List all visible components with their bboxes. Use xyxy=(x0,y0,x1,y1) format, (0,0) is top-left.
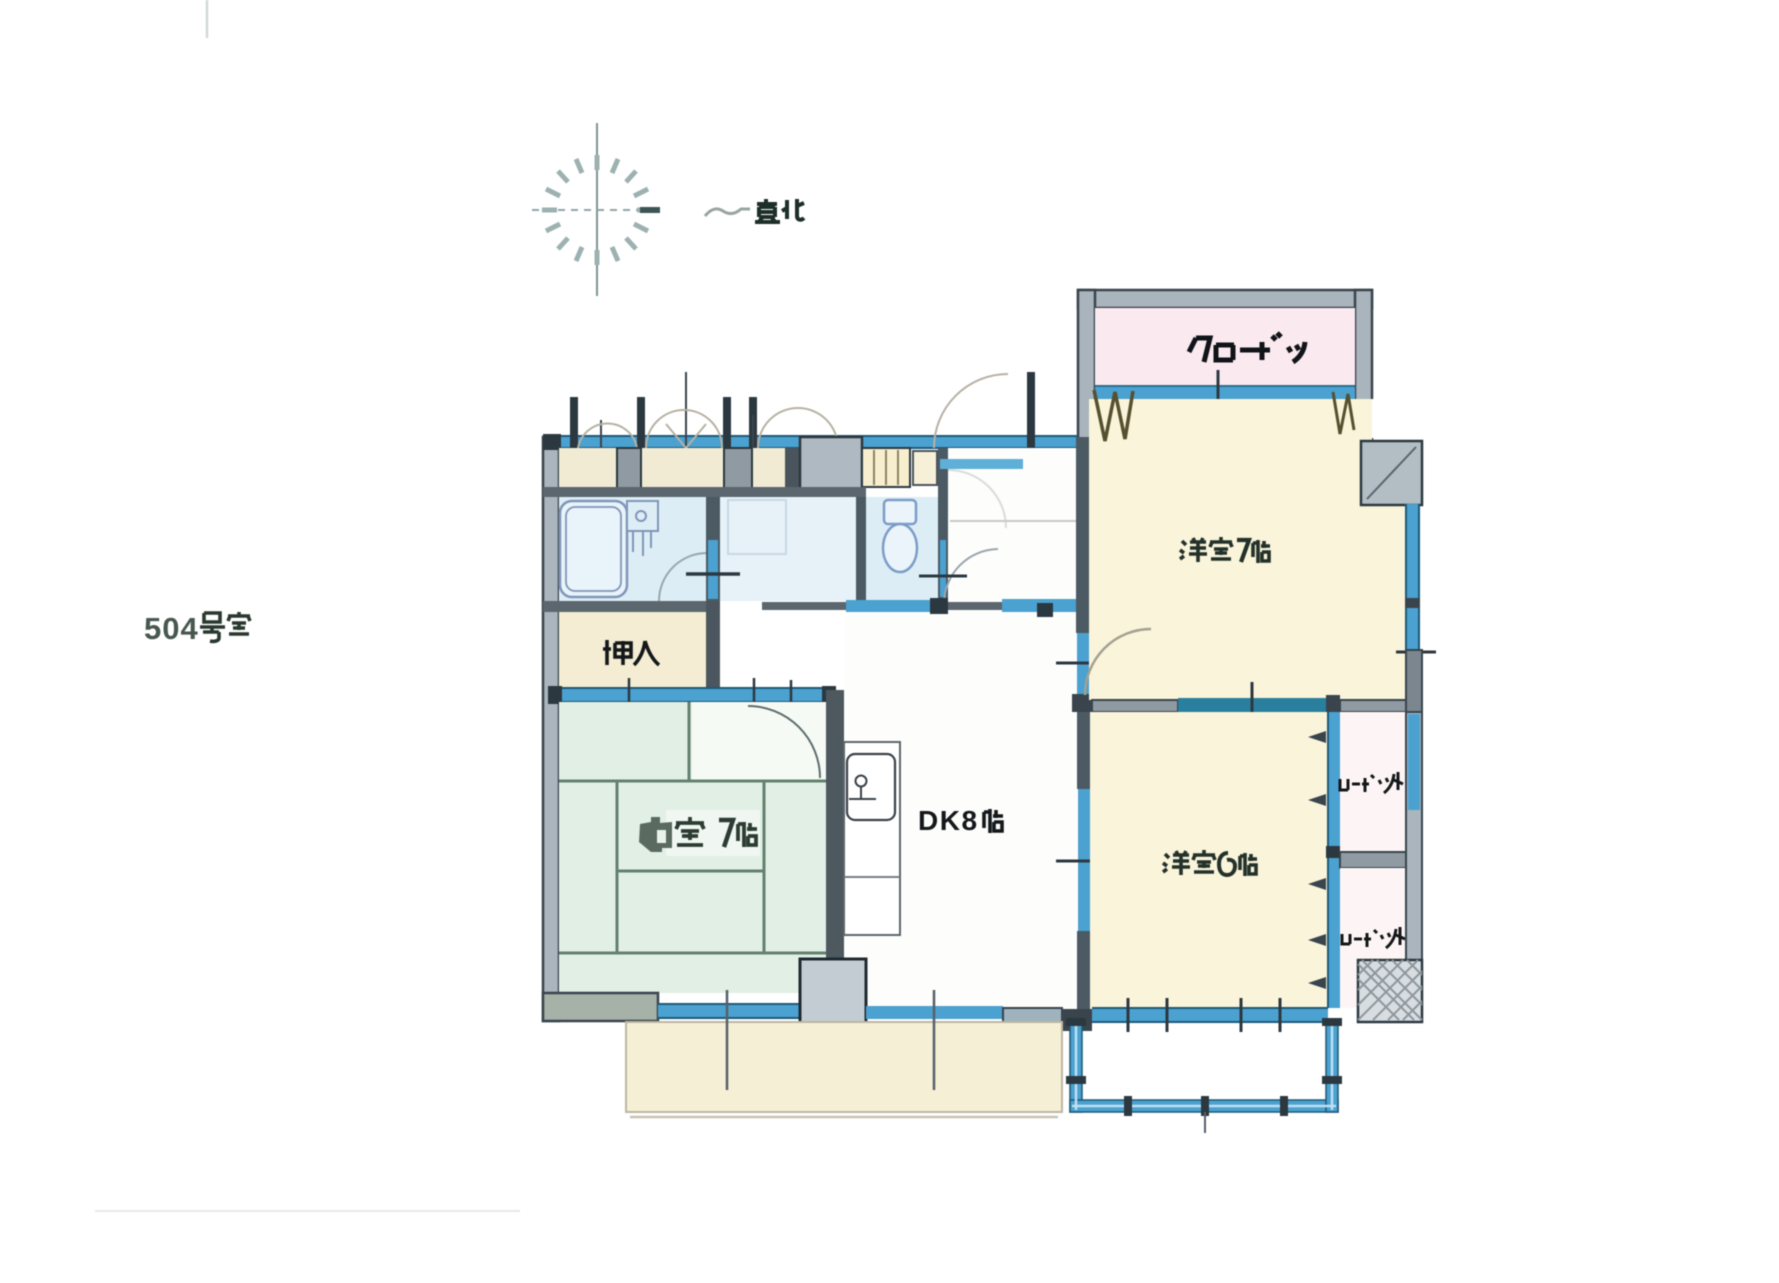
svg-text:DK8: DK8 xyxy=(918,805,979,836)
svg-text:504: 504 xyxy=(144,611,199,646)
